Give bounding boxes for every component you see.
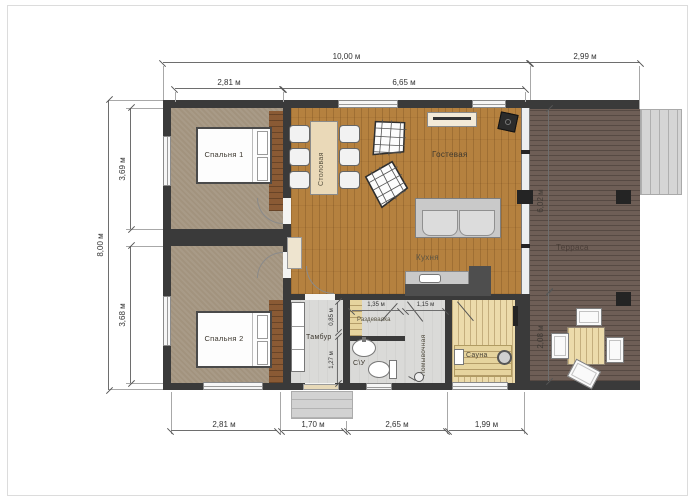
stove-chimney <box>504 118 511 125</box>
extension-line <box>525 92 526 102</box>
dim-vestibule-upper: 0,85 м <box>337 302 338 332</box>
dressing-label: Раздевалка <box>357 317 391 323</box>
sauna-label: Сауна <box>466 352 488 359</box>
extension-line <box>639 66 640 109</box>
shower-head <box>414 372 424 382</box>
terrace-chair <box>551 333 569 359</box>
dining-chair <box>289 148 310 166</box>
living-label: Гостевая <box>432 150 468 159</box>
wood-stove <box>497 111 518 132</box>
entry-threshold <box>303 384 339 390</box>
glass-wall-mullion <box>521 150 530 154</box>
toilet-bowl <box>368 361 390 378</box>
vestibule-label: Тамбур <box>306 334 332 341</box>
dining-chair <box>289 171 310 189</box>
dining-chair <box>289 125 310 143</box>
sauna-bucket-stand <box>454 349 464 365</box>
extension-line <box>280 392 281 434</box>
terrace-chair <box>576 308 602 326</box>
terrace-label: Терраса <box>556 243 589 252</box>
terrace-top-beam <box>530 100 640 109</box>
closet-divider <box>292 326 304 327</box>
extension-line <box>175 92 176 102</box>
window-sauna <box>452 382 508 390</box>
extension-line <box>108 100 163 101</box>
extension-line <box>171 392 172 434</box>
toilet-tank <box>389 360 397 379</box>
dim-top-terrace: 2,99 м <box>530 62 640 63</box>
terrace-post <box>616 292 631 306</box>
dining-chair <box>339 171 360 189</box>
bedroom2-label: Спальня 2 <box>196 334 252 343</box>
bed-blanket-line <box>252 129 253 182</box>
dim-bottom-bedroom: 2,81 м <box>171 430 277 431</box>
vestibule-closet <box>291 302 305 372</box>
sauna-window <box>513 306 518 326</box>
dim-top-bedroom: 2,81 м <box>175 88 283 89</box>
sofa-cushion <box>422 210 458 236</box>
window-bottom-bedroom2 <box>203 382 263 390</box>
dim-dressing-width: 1,35 м <box>352 310 400 311</box>
window-bedroom2 <box>163 296 171 346</box>
dim-left-lower: 3,68 м <box>130 246 131 383</box>
tv <box>433 117 471 120</box>
dim-terrace-upper: 6,02 м <box>548 109 549 292</box>
sofa <box>415 198 501 238</box>
kitchen-lower-cabinets <box>405 284 491 296</box>
exterior-stairs <box>640 109 682 195</box>
bedroom1-label: Спальня 1 <box>196 150 252 159</box>
dim-bottom-entry: 1,70 м <box>282 430 344 431</box>
door-gap-vestibule <box>305 294 335 300</box>
extension-line <box>108 389 163 390</box>
kitchen-sink <box>419 274 441 283</box>
bathroom-label: С\У <box>353 360 365 367</box>
extension-line <box>524 392 525 434</box>
sofa-cushion <box>459 210 495 236</box>
extension-line <box>447 392 448 434</box>
dim-top-living: 6,65 м <box>283 88 525 89</box>
dining-label: Столовая <box>318 130 325 186</box>
dining-chair <box>339 148 360 166</box>
pillow <box>257 341 268 365</box>
terrace-table <box>567 327 605 365</box>
closet-divider <box>292 349 304 350</box>
cabinet <box>287 237 302 269</box>
window-bathroom <box>366 383 392 390</box>
extension-line <box>163 66 164 100</box>
window-top-dining <box>338 100 398 108</box>
dim-top-total: 10,00 м <box>163 62 530 63</box>
glass-wall-pier <box>517 190 533 204</box>
dim-left-total: 8,00 м <box>108 100 109 390</box>
window-top-living <box>472 100 506 108</box>
floor-plan-canvas: Спальня 1 Спальня 2 Столовая <box>0 0 696 502</box>
dim-left-upper: 3,69 м <box>130 108 131 229</box>
dim-bottom-bath: 2,65 м <box>348 430 446 431</box>
kitchen-label: Кухня <box>416 253 439 262</box>
washing-label: Помывочная <box>420 318 427 376</box>
dim-vestibule-lower: 1,27 м <box>337 337 338 383</box>
dim-terrace-lower: 2,08 м <box>548 292 549 381</box>
door-gap-bedroom1 <box>283 198 291 224</box>
extension-line <box>530 66 531 100</box>
dim-bottom-sauna: 1,99 м <box>449 430 524 431</box>
pillow <box>257 157 268 181</box>
dim-washing-width: 1,15 м <box>406 310 445 311</box>
terrace-chair <box>606 337 624 363</box>
glass-wall-mullion <box>521 244 530 248</box>
pillow <box>257 315 268 339</box>
porch-steps <box>291 391 353 419</box>
bed-blanket-line <box>252 313 253 366</box>
pillow <box>257 131 268 155</box>
sink-tap <box>362 337 366 342</box>
extension-line <box>283 92 284 102</box>
window-bedroom1 <box>163 136 171 186</box>
sauna-stove <box>497 350 512 365</box>
terrace-post <box>616 190 631 204</box>
dining-chair <box>339 125 360 143</box>
